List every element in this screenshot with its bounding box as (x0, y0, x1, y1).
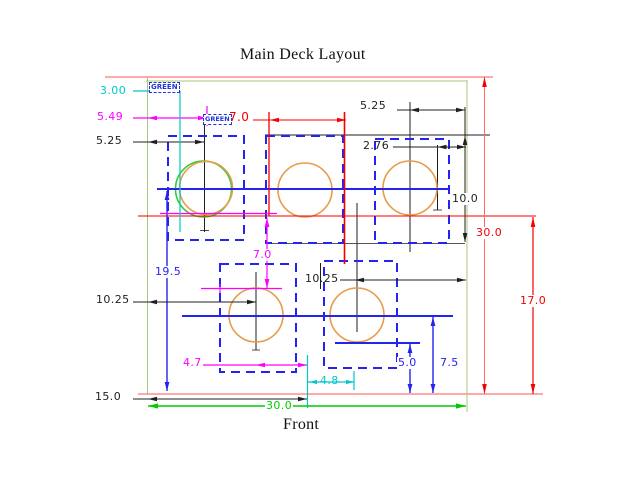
hole-rect-4 (220, 264, 296, 372)
dim-10-25-left: 10.25 (96, 294, 130, 306)
dim-7-5: 7.5 (440, 357, 459, 369)
layer-tag-green-2: GREEN (203, 114, 232, 125)
dim-30-0-bottom: 30.0 (265, 400, 293, 412)
dim-17-0: 17.0 (519, 295, 547, 307)
dim-10-25-right: 10.25 (305, 273, 339, 285)
dim-15-0: 15.0 (95, 391, 121, 403)
drawing-title: Main Deck Layout (240, 49, 366, 61)
layer-tag-green-1: GREEN (149, 82, 180, 93)
dim-4-7: 4.7 (183, 357, 202, 369)
dim-5-25-right: 5.25 (360, 100, 386, 112)
dim-5-25-left: 5.25 (96, 135, 122, 147)
dim-30-0-right: 30.0 (475, 227, 503, 239)
cad-drawing-geometry (0, 0, 620, 479)
view-label-front: Front (283, 419, 319, 431)
dim-10-0: 10.0 (451, 193, 479, 205)
cad-drawing-window: Main Deck Layout Front GREEN GREEN 3.00 … (0, 0, 620, 479)
dim-5-49: 5.49 (97, 111, 123, 123)
dim-2-76: 2.76 (363, 140, 389, 152)
dim-4-8: 4.8 (320, 375, 339, 387)
hole-rectangles (168, 136, 449, 372)
dim-7-0-top: 7.0 (229, 111, 249, 123)
dim-19-5: 19.5 (154, 266, 182, 278)
dim-3-00: 3.00 (100, 85, 126, 97)
dim-7-0-middle: 7.0 (252, 249, 273, 261)
dim-5-0: 5.0 (397, 357, 418, 369)
